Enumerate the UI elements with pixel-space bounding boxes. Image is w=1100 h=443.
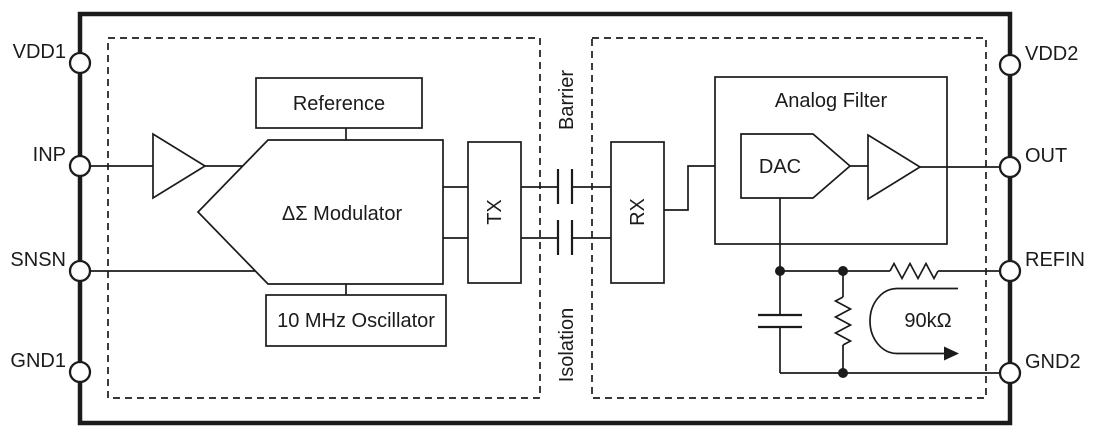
pin-inp-label: INP [33, 144, 66, 166]
pin-gnd1-label: GND1 [10, 350, 66, 372]
input-amplifier-triangle [153, 134, 205, 198]
reference-label: Reference [293, 93, 385, 115]
analog-filter-label: Analog Filter [775, 90, 888, 112]
pin-vdd1 [70, 53, 90, 73]
junction-dot [838, 368, 848, 378]
pin-gnd2-label: GND2 [1025, 351, 1081, 373]
pin-refin-label: REFIN [1025, 249, 1085, 271]
isolation-label: Isolation [556, 308, 578, 383]
pin-vdd2 [1000, 55, 1020, 75]
tx-label: TX [484, 199, 506, 225]
diagram-svg: Barrier Isolation ΔΣ Modulator Reference… [0, 0, 1100, 443]
arrowhead-icon [944, 347, 959, 361]
series-resistor [890, 264, 938, 279]
pin-vdd1-label: VDD1 [13, 41, 66, 63]
pin-snsn [70, 261, 90, 281]
pin-gnd1 [70, 362, 90, 382]
modulator-label: ΔΣ Modulator [282, 203, 403, 225]
oscillator-label: 10 MHz Oscillator [277, 310, 435, 332]
pin-out-label: OUT [1025, 145, 1067, 167]
dac-label: DAC [759, 156, 801, 178]
pin-gnd2 [1000, 363, 1020, 383]
pin-refin [1000, 261, 1020, 281]
shunt-resistor [836, 297, 851, 345]
pin-inp [70, 156, 90, 176]
junction-dot [775, 266, 785, 276]
resistance-value-label: 90kΩ [904, 310, 951, 332]
pin-snsn-label: SNSN [10, 249, 66, 271]
pin-out [1000, 157, 1020, 177]
pin-vdd2-label: VDD2 [1025, 43, 1078, 65]
block-diagram: Barrier Isolation ΔΣ Modulator Reference… [0, 0, 1100, 443]
junction-dot [838, 266, 848, 276]
rx-label: RX [627, 198, 649, 226]
barrier-label: Barrier [556, 70, 578, 130]
